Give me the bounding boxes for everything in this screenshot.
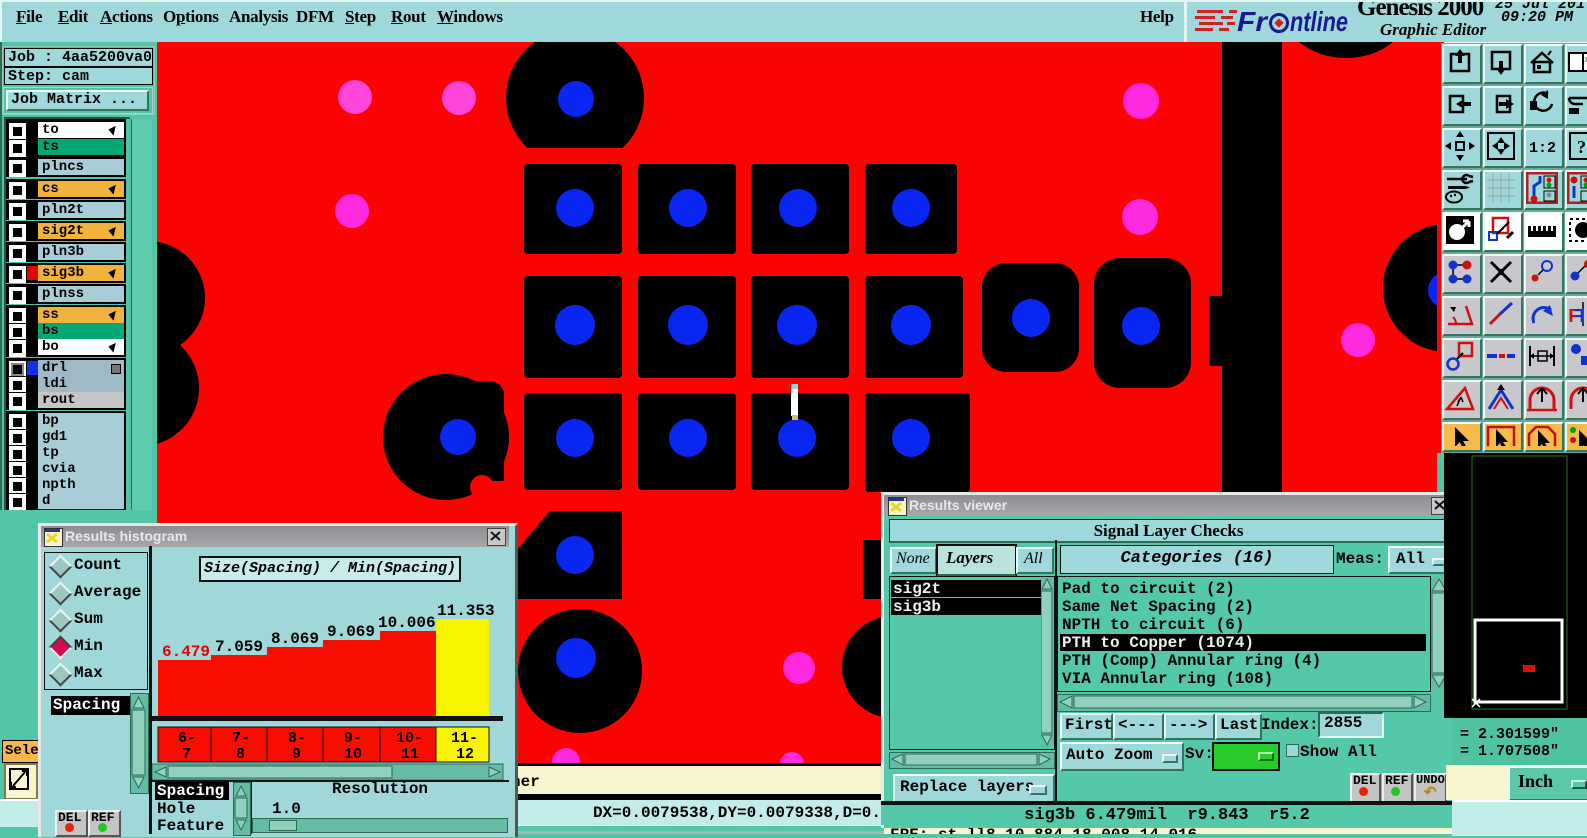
svg-text:7: 7 xyxy=(182,746,191,763)
svg-text:?: ? xyxy=(1577,137,1586,157)
svg-text:9-: 9- xyxy=(344,730,362,747)
svg-text:1:2: 1:2 xyxy=(1529,140,1556,157)
svg-text:11: 11 xyxy=(401,746,419,763)
svg-text:ntline: ntline xyxy=(1290,6,1348,37)
svg-text:7-: 7- xyxy=(232,730,250,747)
svg-text:F: F xyxy=(1574,306,1585,328)
svg-text:10-: 10- xyxy=(396,730,423,747)
svg-text:8-: 8- xyxy=(288,730,306,747)
svg-text:11-: 11- xyxy=(451,730,478,747)
svg-text:9: 9 xyxy=(292,746,301,763)
svg-text:8: 8 xyxy=(236,746,245,763)
svg-text:12: 12 xyxy=(456,746,474,763)
svg-text:Fr: Fr xyxy=(1237,6,1269,37)
svg-text:10: 10 xyxy=(344,746,362,763)
svg-text:6-: 6- xyxy=(178,730,196,747)
